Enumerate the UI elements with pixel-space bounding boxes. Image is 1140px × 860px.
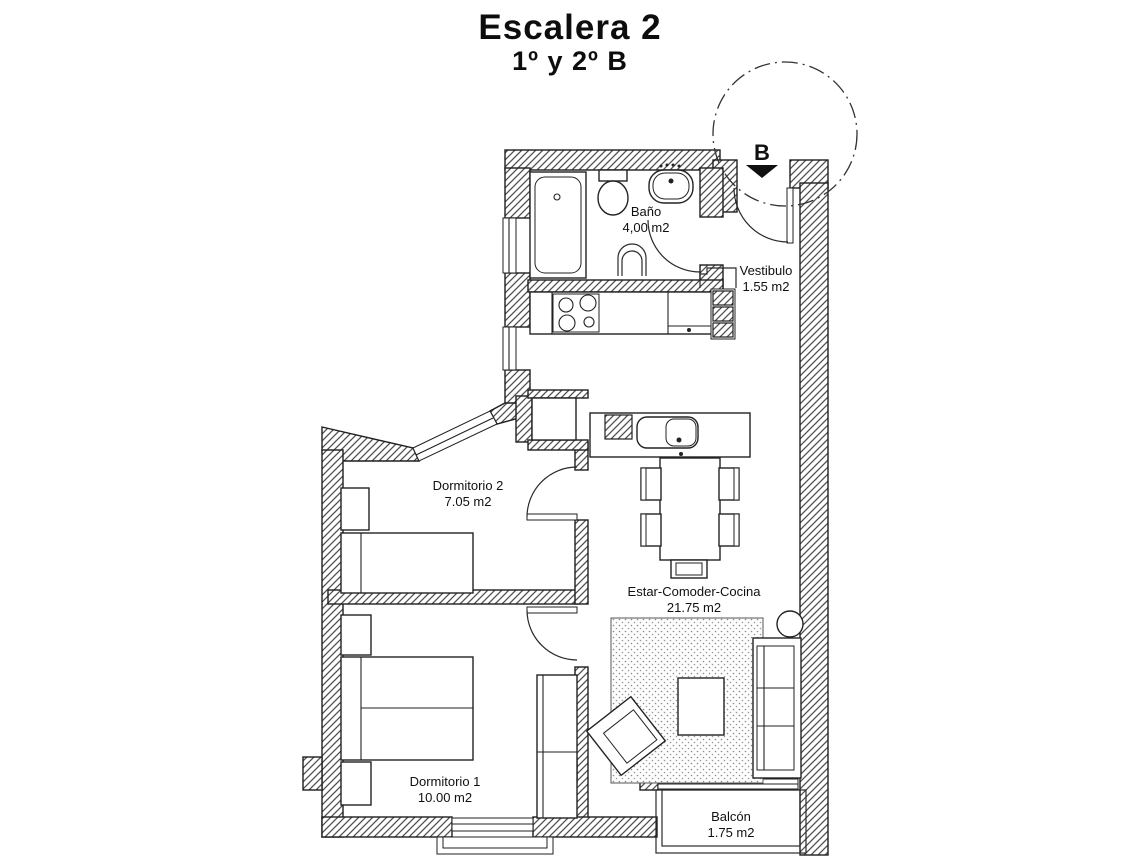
chair xyxy=(671,560,707,578)
bedroom2-door xyxy=(527,467,577,520)
kitchen-window xyxy=(503,327,516,370)
bathroom-window xyxy=(503,218,516,273)
wall-left-step xyxy=(303,757,322,790)
dining-set xyxy=(641,458,739,578)
stairwell-letter: B xyxy=(754,140,770,165)
bedroom1-door xyxy=(527,607,577,660)
wall-left-mid xyxy=(505,273,530,327)
wall-bath-kitchen xyxy=(528,280,723,292)
entry-door xyxy=(734,188,793,243)
chair xyxy=(719,468,739,500)
entry-arrow-icon xyxy=(746,165,778,178)
room-label-balcon: Balcón xyxy=(711,809,751,824)
sofa xyxy=(753,638,801,778)
chair xyxy=(641,514,661,546)
wardrobe xyxy=(537,675,577,818)
room-label-estar: Estar-Comoder-Cocina xyxy=(628,584,762,599)
room-area-balcon: 1.75 m2 xyxy=(708,825,755,840)
dining-table xyxy=(660,458,720,560)
floorplan-drawing: B Baño 4,00 m2 Vestibulo 1.55 m2 Dormito… xyxy=(0,0,1140,860)
wall-bath-right-top xyxy=(700,168,723,217)
room-area-vestibulo: 1.55 m2 xyxy=(743,279,790,294)
wall-bath-top xyxy=(505,150,720,170)
bathtub xyxy=(530,172,586,278)
living-room-furniture xyxy=(587,611,803,783)
room-label-bano: Baño xyxy=(631,204,661,219)
room-label-dormitorio2: Dormitorio 2 xyxy=(433,478,504,493)
single-bed xyxy=(341,533,473,593)
wall-right-main xyxy=(800,183,828,855)
wall-closet-left xyxy=(516,396,532,442)
wall-left-top xyxy=(505,168,530,218)
wall-bottom-left xyxy=(322,817,452,837)
room-label-dormitorio1: Dormitorio 1 xyxy=(410,774,481,789)
room-area-bano: 4,00 m2 xyxy=(623,220,670,235)
chair xyxy=(719,514,739,546)
nightstand xyxy=(341,615,371,655)
bidet xyxy=(618,244,646,276)
wall-closet-top xyxy=(528,390,588,398)
wall-hall-mid xyxy=(575,520,588,604)
side-table xyxy=(777,611,803,637)
room-area-estar: 21.75 m2 xyxy=(667,600,721,615)
double-bed xyxy=(341,657,473,760)
toilet xyxy=(598,170,628,215)
nightstand xyxy=(341,488,369,530)
wall-closet-bottom xyxy=(528,440,588,450)
bedroom2-diagonal-window xyxy=(413,411,497,461)
room-area-dormitorio2: 7.05 m2 xyxy=(445,494,492,509)
nightstand xyxy=(341,762,371,805)
floorplan-page: Escalera 2 1º y 2º B xyxy=(0,0,1140,860)
room-label-vestibulo: Vestibulo xyxy=(740,263,793,278)
chair xyxy=(641,468,661,500)
hob-4-burner xyxy=(553,294,599,332)
coffee-table xyxy=(678,678,724,735)
room-area-dormitorio1: 10.00 m2 xyxy=(418,790,472,805)
wall-left-main xyxy=(322,450,343,837)
wall-bottom-right xyxy=(533,817,657,837)
closet xyxy=(532,398,576,440)
